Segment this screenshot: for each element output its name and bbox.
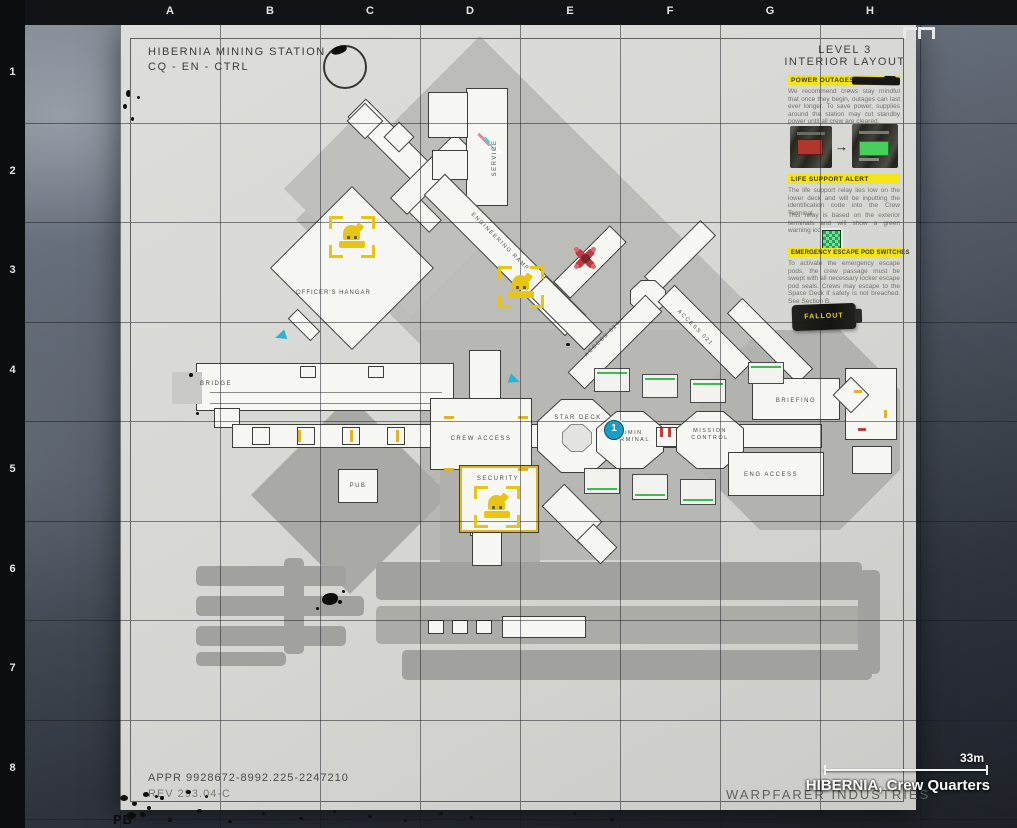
speckle-stain [140,812,146,817]
approval-number: APPR 9928672-8992.225-2247210 [148,772,349,784]
silhouette-hull [858,570,880,674]
map-subtitle: CQ - EN - CTRL [148,61,249,73]
terminal-green-image [852,124,898,168]
door-mark-red [668,428,671,437]
bunk-pod [632,474,668,500]
screen-red [797,139,823,155]
speckle-stain [262,812,265,815]
screen-text-line [797,132,825,135]
star-deck-core [562,424,592,452]
hull-window [452,620,468,634]
scale-label: 33m [960,751,984,765]
panel-section2-body2: This relay is based on the exterior term… [788,212,900,235]
speckle-stain [333,810,336,813]
room-label-eng-access: ENG ACCESS [736,472,806,478]
panel-section3-heading: EMERGENCY ESCAPE POD SWITCHES [788,248,902,257]
objective-marker-ramp[interactable] [498,266,544,308]
speckle-stain [610,818,614,821]
silhouette-hull [402,650,872,680]
grid-line [920,25,921,828]
grid-line [25,819,1017,820]
bunk-pod [594,368,630,392]
bunk-pod [690,379,726,403]
map-corner-mark-icon [918,27,935,39]
fallout-battery-image: FALLOUT [792,303,857,331]
room-label-security: SECURITY [466,476,530,482]
silhouette-dock [196,566,346,586]
bunk-pod [584,468,620,494]
room-label-officers-hangar: OFFICER'S HANGAR [296,290,371,296]
room-label-star-deck: STAR DECK [548,415,608,421]
speckle-stain [470,816,473,819]
door-mark [350,430,353,442]
corner-stamp: PB [113,812,133,827]
door-mark [298,430,301,442]
speckle-stain [299,817,303,820]
grid-header-strip [0,0,1017,25]
speckle-stain [439,812,443,815]
bridge-lines [210,392,442,404]
door-mark [396,430,399,442]
service-room [428,92,468,138]
silhouette-dock [196,626,346,646]
green-code-icon [822,230,841,249]
screen-text-line [859,131,889,134]
suit-objective-icon [339,225,365,248]
bunk-pod [748,362,784,384]
eng-room [852,446,892,474]
room-label-pub: PUB [342,483,374,489]
corridor [472,530,502,566]
service-corridor [466,88,508,206]
room-label-service: SERVICE [492,133,498,183]
door-mark [854,390,862,393]
door-mark [518,468,528,471]
speckle-stain [168,818,172,822]
panel-section1-body: We recommend crews stay mindful that onc… [788,88,900,126]
door-mark [444,468,454,471]
revision-number: REV 293.04-C [148,788,231,800]
room-label-crew-access: CREW ACCESS [436,436,526,442]
suit-objective-icon [484,495,510,518]
bunk-pod [680,479,716,505]
room-label-bridge: BRIDGE [200,381,232,387]
service-room [432,150,468,180]
speckle-stain [404,819,407,822]
objective-marker-security[interactable] [474,486,520,528]
waypoint-marker-1[interactable]: 1 [604,420,624,440]
bridge-cap [172,372,202,404]
speckle-stain [228,820,232,823]
objective-marker-hangar[interactable] [329,216,375,258]
hull-window [502,616,586,638]
arrow-icon [835,139,848,154]
screen-green [859,141,889,156]
spine-node [252,427,270,445]
suit-objective-icon [508,275,534,298]
game-map-screen: BRIDGE OFFICER'S HANGAR SERVICE ENGINEER… [0,0,1017,828]
hull-window [476,620,492,634]
coffee-ring-stain [323,45,367,89]
silhouette-dock [196,596,364,616]
silhouette-dock [284,558,304,654]
speckle-stain [573,812,576,815]
door-mark [884,410,887,418]
silhouette-hull [376,562,862,600]
map-title: HIBERNIA MINING STATION [148,46,326,58]
room-label-briefing: BRIEFING [768,398,824,404]
silhouette-hull [376,606,862,644]
door-mark-red [660,428,663,437]
grid-row-strip [0,0,25,828]
panel-section3-body: To activate the emergency escape pods, t… [788,260,900,305]
hazard-marker-icon[interactable] [572,245,598,271]
redaction-mark [884,76,896,85]
room-label-mission-control: MISSION CONTROL [682,428,738,442]
speckle-stain [368,815,372,818]
panel-heading: LEVEL 3 INTERIOR LAYOUT [780,44,910,68]
door-mark-red [858,428,866,431]
scale-bar [824,769,988,771]
bridge-pod [300,366,316,378]
bridge-pod [368,366,384,378]
door-mark [518,416,528,419]
screen-text-line [859,158,879,161]
bunk-pod [642,374,678,398]
silhouette-dock [196,652,286,666]
map-corner-mark-icon [903,27,917,39]
crew-access-hub [430,398,532,470]
hull-window [428,620,444,634]
terminal-red-image [790,126,832,168]
location-label: HIBERNIA, Crew Quarters [806,777,990,794]
door-mark [444,416,454,419]
panel-section2-heading: LIFE SUPPORT ALERT [788,174,900,184]
